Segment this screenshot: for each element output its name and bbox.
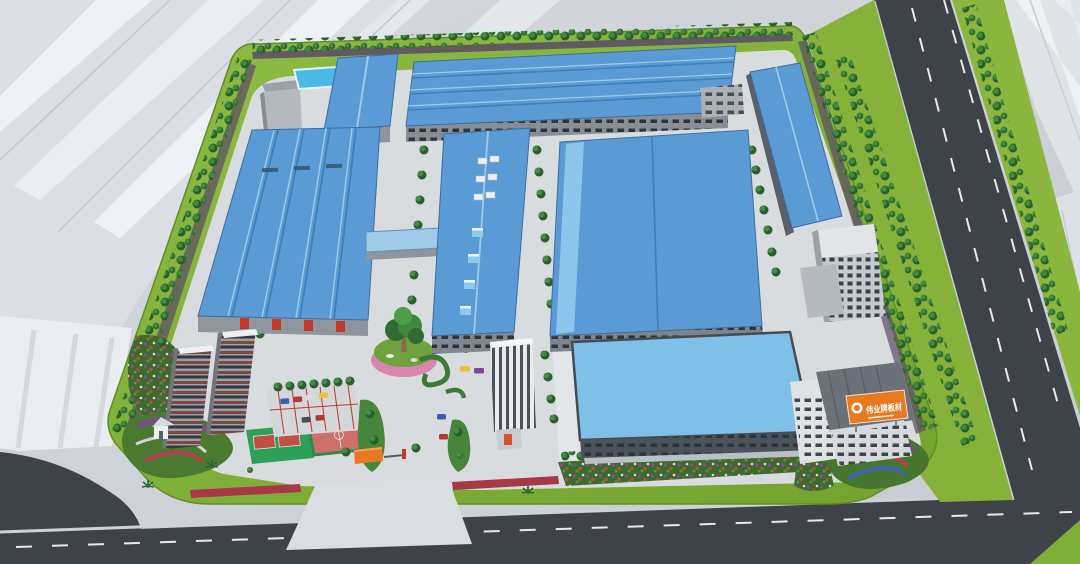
entrance-driveway [286,478,472,550]
workshop-east-center [550,130,764,352]
annex-building [700,84,744,118]
car [437,414,446,420]
car [319,392,328,398]
utility-building [260,80,302,134]
scene-canvas: 伟业牌板材 [0,0,1080,564]
factory-campus-rendering: 伟业牌板材 [0,0,1080,564]
gate-pillar [402,449,406,459]
connecting-corridor [366,228,440,260]
car [301,417,310,423]
car [293,396,302,402]
car [460,366,470,372]
car [438,424,447,430]
car [280,398,289,404]
car [439,434,448,440]
warehouse-roof [572,332,812,440]
car [315,415,324,421]
warehouse-south [572,332,817,464]
workshop-center [432,128,530,354]
car [474,368,484,374]
car [306,394,315,400]
workshop-north-long [406,46,744,142]
